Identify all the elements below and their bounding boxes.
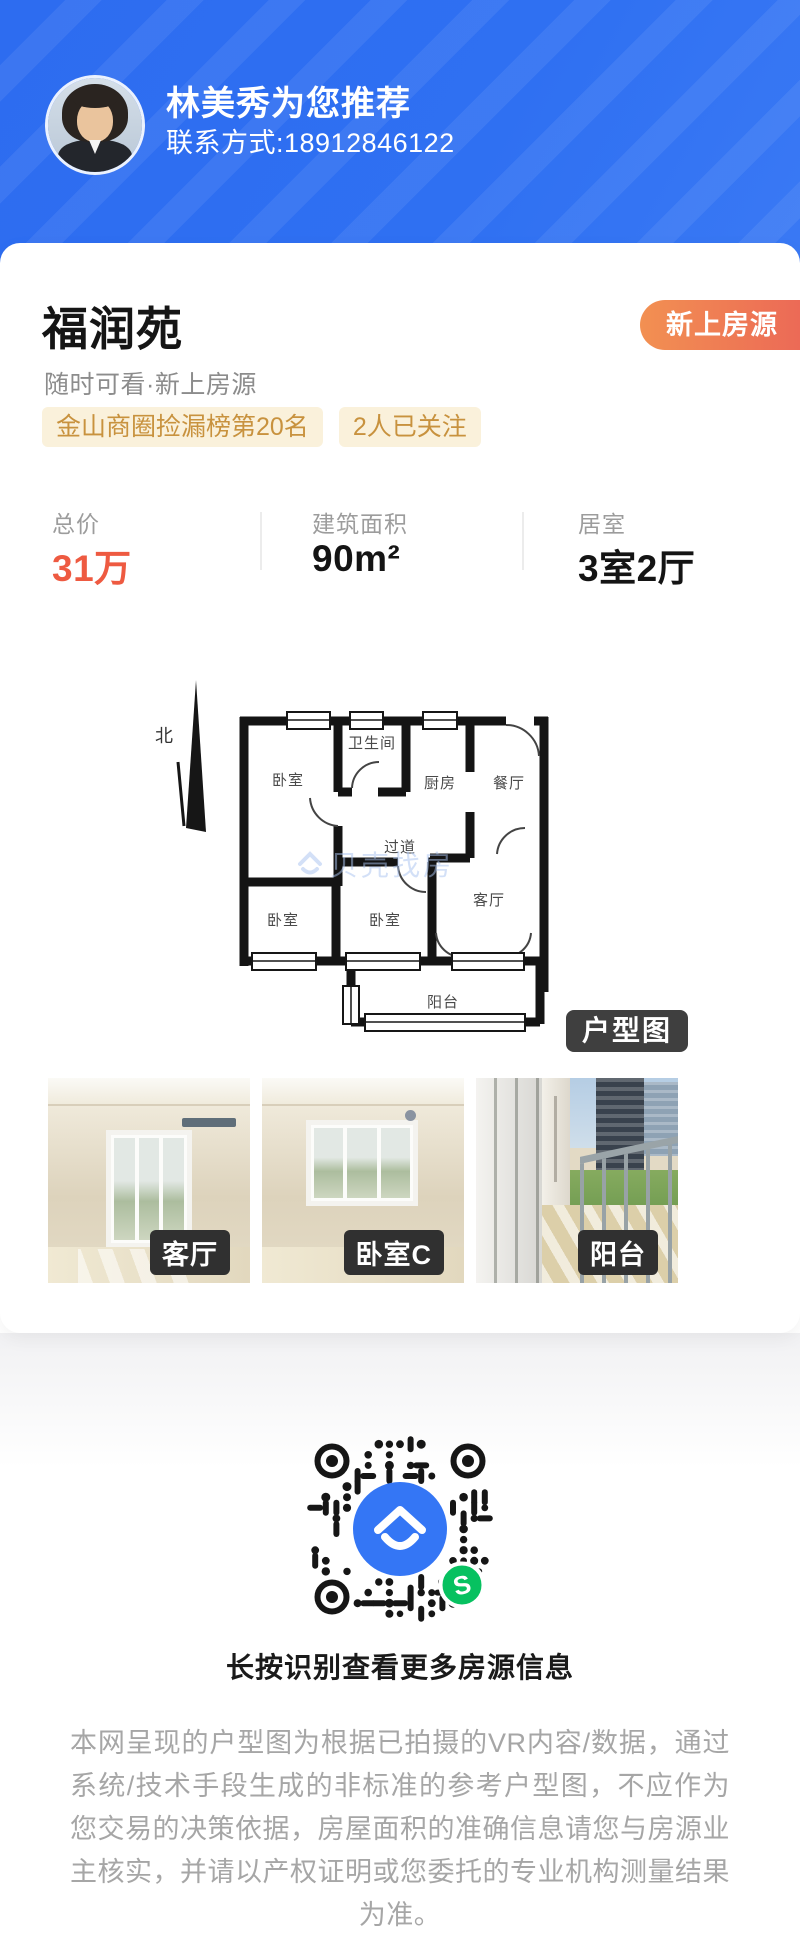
qr-caption: 长按识别查看更多房源信息	[0, 1646, 800, 1686]
north-arrow-icon	[178, 680, 206, 832]
qr-code[interactable]: S	[297, 1426, 503, 1632]
qr-house-logo-icon	[353, 1482, 447, 1576]
tag-followers: 2人已关注	[339, 407, 481, 447]
stat-layout-value: 3室2厅	[578, 538, 695, 592]
room-label-bathroom: 卫生间	[348, 735, 396, 752]
ac-vent	[182, 1118, 236, 1127]
agent-name: 林美秀为您推荐	[166, 76, 411, 125]
stat-total-price-value: 31万	[52, 538, 132, 592]
photo-ceiling	[48, 1078, 250, 1106]
photo-livingroom[interactable]: 客厅	[48, 1078, 250, 1283]
stat-area-label: 建筑面积	[312, 505, 408, 539]
photo-label-livingroom: 客厅	[150, 1230, 230, 1275]
floorplan-badge: 户型图	[566, 1010, 688, 1052]
photo-bedroom-c[interactable]: 卧室C	[262, 1078, 464, 1283]
floorplan-image[interactable]: 北	[140, 672, 570, 1044]
agent-avatar[interactable]	[48, 78, 142, 172]
photo-ceiling	[262, 1078, 464, 1106]
bedroom-window	[306, 1120, 418, 1206]
stat-total-price-label: 总价	[52, 505, 100, 539]
stat-area-value: 90m²	[312, 538, 400, 580]
watermark-text: 贝壳找房	[330, 850, 454, 881]
floorplan-door-arcs	[310, 725, 539, 957]
share-page: 林美秀为您推荐 联系方式:18912846122 福润苑 新上房源 随时可看·新…	[0, 0, 800, 1950]
watermark-logo-icon: 贝壳找房	[300, 850, 454, 881]
stat-divider	[522, 512, 524, 570]
tag-bargain-rank: 金山商圈捡漏榜第20名	[42, 407, 323, 447]
agent-phone[interactable]: 联系方式:18912846122	[166, 121, 455, 160]
north-label: 北	[155, 726, 173, 746]
photo-label-bedroom-c: 卧室C	[344, 1230, 445, 1275]
stat-layout-label: 居室	[578, 505, 626, 539]
balcony-glass-doors	[476, 1078, 542, 1283]
avatar-fringe	[73, 92, 117, 108]
listing-title: 福润苑	[42, 293, 183, 359]
wall-clock	[405, 1110, 416, 1121]
room-label-bedroom-tl: 卧室	[272, 772, 304, 789]
room-label-kitchen: 厨房	[424, 775, 456, 792]
stat-divider	[260, 512, 262, 570]
wechat-mini-program-icon: S	[441, 1564, 484, 1607]
room-label-bedroom-bm: 卧室	[369, 912, 401, 929]
tag-row: 金山商圈捡漏榜第20名 2人已关注	[42, 407, 481, 447]
listing-subtitle: 随时可看·新上房源	[44, 365, 257, 401]
room-label-dining: 餐厅	[493, 775, 525, 792]
room-label-bedroom-bl: 卧室	[267, 912, 299, 929]
room-label-living: 客厅	[473, 892, 505, 909]
new-listing-badge: 新上房源	[640, 300, 800, 350]
room-label-balcony: 阳台	[427, 994, 459, 1011]
photo-label-balcony: 阳台	[578, 1230, 658, 1275]
photo-balcony[interactable]: 阳台	[476, 1078, 678, 1283]
disclaimer-text: 本网呈现的户型图为根据已拍摄的VR内容/数据，通过系统/技术手段生成的非标准的参…	[70, 1722, 730, 1937]
photo-strip: 客厅 卧室C 阳台	[48, 1078, 678, 1283]
balcony-pipe	[554, 1096, 557, 1182]
